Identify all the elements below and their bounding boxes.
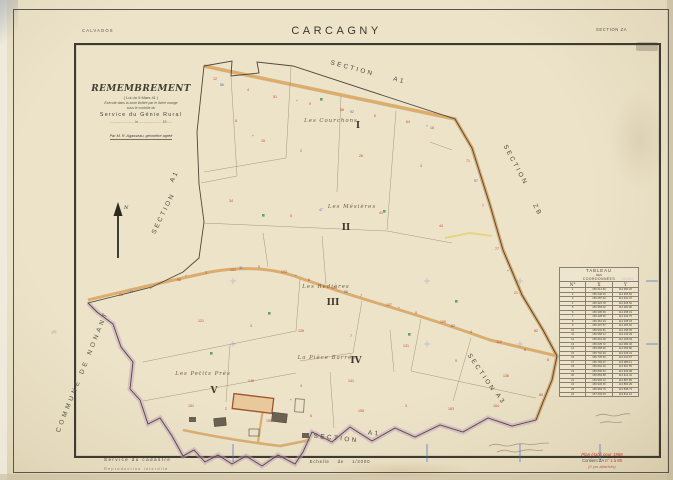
cadastre-service-label: Service du cadastre [104, 457, 171, 462]
remembrement-block: REMEMBREMENT ( Loi du 9 Mars 41 ) Exécut… [78, 84, 204, 142]
red-parcel-number: 164 [493, 404, 499, 408]
red-parcel-number: 107 [386, 303, 392, 307]
coordinates-row: 6156 395 66114 258 31 [560, 310, 639, 315]
plot-numeral: II [342, 223, 350, 233]
lieu-dit-label: Les Mésières [327, 203, 376, 210]
red-parcel-number: 146 [248, 379, 254, 383]
north-label: N [123, 205, 129, 211]
red-parcel-number: 151 [188, 404, 194, 408]
red-parcel-number: 9 [455, 359, 457, 363]
section-label: A1 [169, 169, 181, 183]
blue-survey-mark: 62 [451, 324, 455, 328]
commune-de-nonant-label: COMMUNE DE NONANT [55, 309, 111, 433]
red-parcel-number: 4 [247, 88, 249, 92]
red-parcel-number: 101 [230, 268, 236, 272]
red-parcel-number: 6 [310, 414, 312, 418]
pencil-notes [489, 414, 630, 452]
coordinates-row: 1156 214 62114 382 20 [560, 288, 639, 293]
blue-survey-mark: + [426, 124, 428, 128]
red-parcel-number: 15 [261, 139, 265, 143]
red-parcel-number: 12 [213, 77, 217, 81]
note-contains: Contient ZA n° 1 à 89 [544, 458, 660, 463]
plot-numeral: I [356, 121, 360, 131]
coordinates-row: 21156 903 12113 887 85 [560, 378, 639, 383]
blue-survey-mark: 31 [239, 266, 243, 270]
commune-label: COMMUNE DE NONANT [55, 309, 111, 433]
plot-numeral: V [210, 386, 219, 396]
coordinates-row: 24157 003 03113 814 16 [560, 392, 639, 397]
red-parcel-number: 51 [273, 95, 277, 99]
red-parcel-number: 98 [177, 278, 181, 282]
red-parcel-number: 9 [415, 311, 417, 315]
red-parcel-number: 163 [448, 407, 454, 411]
coordinates-row: 19156 836 54113 936 98 [560, 369, 639, 374]
update-notes: Plan établi pour 1968 Contient ZA n° 1 à… [544, 452, 660, 469]
red-parcel-number: 21 [514, 291, 518, 295]
coordinates-row: 18156 802 20113 961 55 [560, 365, 639, 370]
surveyor-line: Par M. R. Agasseau, géomètre agréé [110, 134, 173, 140]
coordinates-row: 8156 464 23114 208 18 [560, 319, 639, 324]
red-parcel-number: 8 [547, 358, 549, 362]
red-parcel-number: 4 [470, 330, 472, 334]
table-title: TABLEAU DES COORDONNÉES [560, 268, 639, 282]
note-contains-range: 1 à 89 [610, 458, 622, 463]
road-yellow [445, 233, 492, 238]
north-arrow: N [114, 202, 130, 258]
coordinates-row: 23156 969 79113 838 73 [560, 388, 639, 393]
red-parcel-number: 112 [496, 340, 502, 344]
red-parcel-number: 126 [298, 329, 304, 333]
zone-note-line2: sous le contrôle du [78, 106, 204, 110]
note-attachments: (2 ym attachés) [544, 464, 660, 469]
coordinates-row: 3156 287 40114 331 07 [560, 297, 639, 302]
date-dotted-line: ........................ , le ..........… [78, 120, 204, 124]
red-parcel-number: 82 [534, 329, 538, 333]
red-parcel-number: 34 [229, 199, 233, 203]
red-parcel-number: 141 [348, 379, 354, 383]
note-plan-year: Plan établi pour 1968 [544, 452, 660, 457]
red-parcel-number: 2 [300, 149, 302, 153]
lieu-dit-label: Les Redières [301, 283, 349, 290]
red-parcel-number: 5 [290, 214, 292, 218]
blue-survey-mark: 92 [350, 110, 354, 114]
green-mark [455, 300, 458, 303]
coord-x: 157 003 03 [586, 392, 612, 397]
margin-note: (2) [52, 329, 58, 334]
blue-survey-mark: 97 [474, 179, 478, 183]
margin-pencil-note: (2) [52, 329, 58, 334]
red-parcel-number: 103 [281, 270, 287, 274]
red-parcel-number: 77 [495, 247, 499, 251]
section-label: A1 [392, 76, 406, 86]
coordinates-row: 15156 702 39114 035 24 [560, 351, 639, 356]
red-parcel-number: 121 [198, 319, 204, 323]
red-parcel-number: 5 [258, 265, 260, 269]
coordinates-row: 11156 568 14114 133 49 [560, 333, 639, 338]
blue-survey-mark: + [398, 306, 400, 310]
coordinates-table: TABLEAU DES COORDONNÉES N° X Y 1156 214 … [559, 267, 639, 397]
red-parcel-number: 4 [300, 384, 302, 388]
section-label: SECTION [502, 144, 529, 187]
coordinates-row: 17156 769 97113 986 11 [560, 360, 639, 365]
coordinates-row: 9156 497 57114 183 62 [560, 324, 639, 329]
section-label: A1 [368, 429, 381, 437]
coordinates-row: 4156 324 78114 305 52 [560, 301, 639, 306]
blue-survey-mark: + [507, 269, 509, 273]
red-parcel-number: 6 [524, 348, 526, 352]
green-mark [268, 312, 271, 315]
blue-survey-mark: + [296, 99, 298, 103]
red-parcel-number: 6 [308, 278, 310, 282]
red-parcel-number: 105 [331, 286, 337, 290]
lieu-dit-label: Les Courchons [303, 118, 358, 124]
red-parcel-number: 41 [379, 211, 383, 215]
coordinates-row: 22156 936 45113 863 29 [560, 383, 639, 388]
green-mark [408, 333, 411, 336]
red-parcel-number: 3 [250, 324, 252, 328]
coordinates-row: 14156 668 06114 059 80 [560, 347, 639, 352]
coordinates-row: 16156 735 63114 010 67 [560, 356, 639, 361]
coordinates-row: 13156 635 72114 084 36 [560, 342, 639, 347]
blue-survey-mark: 24 [129, 290, 133, 294]
blue-survey-mark: + [290, 398, 292, 402]
point-number: 24 [560, 392, 586, 397]
scale-label: Echelle de 1/2000 [285, 459, 395, 464]
red-parcel-number: 96 [119, 293, 123, 297]
red-parcel-number: 44 [439, 224, 443, 228]
red-parcel-number: 3 [405, 404, 407, 408]
zone-note-line1: Exécuté dans la zone limitée par le lisé… [78, 101, 204, 105]
map-canvas: N SECTIONA1SECTIONZBA1SECTIONSECTIONA3SE… [0, 0, 673, 480]
blue-survey-mark: + [252, 134, 254, 138]
red-parcel-number: 8 [235, 119, 237, 123]
red-parcel-number: 2 [150, 286, 152, 290]
red-parcel-number: 158 [358, 409, 364, 413]
red-parcel-number: 7 [350, 334, 352, 338]
red-parcel-number: 26 [359, 154, 363, 158]
red-parcel-number: 6 [374, 114, 376, 118]
blue-survey-mark: + [185, 274, 187, 278]
red-parcel-number: 7 [360, 294, 362, 298]
lieu-dit-label: Les Petits Prés [174, 370, 231, 377]
coordinates-row: 10156 532 81114 158 05 [560, 328, 639, 333]
blue-survey-mark: 86 [220, 83, 224, 87]
red-parcel-number: 155 [266, 419, 272, 423]
reproduction-notice: Reproduction interdite [104, 466, 168, 471]
red-parcel-number: 109 [440, 320, 446, 324]
red-parcel-number: 86 [539, 393, 543, 397]
section-label: SECTION [313, 433, 359, 445]
cadastral-sheet: CALVADOS CARCAGNY SECTION ZA [0, 0, 673, 480]
section-label: SECTION [151, 191, 177, 235]
lieu-dit-label: La Pièce Barrée [297, 354, 357, 361]
coordinates-row: 2156 248 15114 356 84 [560, 292, 639, 297]
table-title-line3: COORDONNÉES [561, 277, 637, 281]
coordinates-row: 7156 428 90114 232 75 [560, 315, 639, 320]
blue-survey-mark: 47 [319, 208, 323, 212]
section-label: ZB [531, 203, 543, 218]
commune-boundary-wash [88, 303, 536, 466]
red-parcel-number: 64 [406, 120, 410, 124]
section-label: SECTION [466, 352, 497, 393]
coordinates-row: 5156 359 02114 282 96 [560, 306, 639, 311]
red-parcel-number: 3 [420, 164, 422, 168]
blue-survey-mark: 56 [344, 290, 348, 294]
green-mark [320, 98, 323, 101]
red-parcel-number: 131 [403, 344, 409, 348]
plot-numeral: III [327, 298, 340, 308]
red-parcel-number: 2 [225, 407, 227, 411]
lieu-dit-labels: Les CourchonsLes MésièresLes RedièresLa … [174, 118, 376, 377]
coord-y: 113 814 16 [612, 392, 638, 397]
red-parcel-number: 18 [430, 126, 434, 130]
note-contains-prefix: Contient ZA n° [582, 458, 609, 463]
red-parcel-number: 7 [482, 204, 484, 208]
law-reference: ( Loi du 9 Mars 41 ) [78, 95, 204, 100]
green-mark [383, 210, 386, 213]
coordinates-row: 20156 869 88113 912 42 [560, 374, 639, 379]
section-label: SECTION [330, 59, 375, 77]
red-parcel-number: 58 [340, 108, 344, 112]
red-parcel-number: 136 [503, 374, 509, 378]
plot-numeral: IV [350, 356, 362, 366]
red-parcel-number: 9 [309, 102, 311, 106]
coordinates-row: 12156 601 48114 108 93 [560, 338, 639, 343]
remembrement-heading: REMEMBREMENT [78, 84, 204, 94]
blue-survey-mark: + [295, 274, 297, 278]
green-mark [210, 352, 213, 355]
service-name: Service du Génie Rural [78, 112, 204, 118]
green-mark [262, 214, 265, 217]
red-parcel-number: 71 [466, 159, 470, 163]
red-parcel-number: 3 [205, 271, 207, 275]
